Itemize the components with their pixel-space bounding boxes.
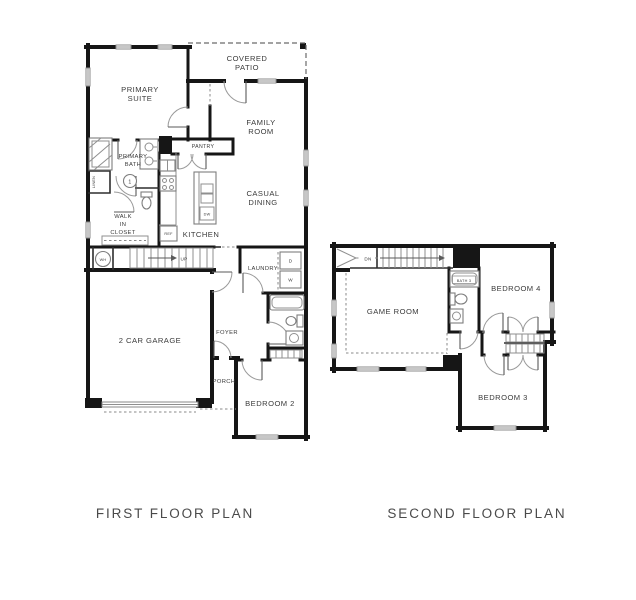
washer-label: W xyxy=(288,278,293,283)
covered-patio-label: PATIO xyxy=(235,63,259,72)
keynote-label: 1 xyxy=(128,179,131,185)
porch-label: PORCH xyxy=(213,379,236,385)
family-room-label: ROOM xyxy=(248,127,273,136)
bedroom-3-label: BEDROOM 3 xyxy=(478,393,528,402)
primary-suite-label: SUITE xyxy=(128,94,153,103)
stair-up-arrow xyxy=(171,255,177,261)
first-floor-labels: COVERED PATIO PRIMARY SUITE FAMILY ROOM … xyxy=(92,54,295,408)
covered-patio-label: COVERED xyxy=(227,54,268,63)
stair-down-arrow xyxy=(439,255,445,261)
laundry-label: LAUNDRY xyxy=(248,266,278,272)
dryer-label: D xyxy=(289,259,293,264)
stairs-first-floor xyxy=(130,248,213,268)
kitchen-label: KITCHEN xyxy=(183,230,220,239)
second-floor-caption: SECOND FLOOR PLAN xyxy=(387,506,566,521)
floor-plan-canvas: COVERED PATIO PRIMARY SUITE FAMILY ROOM … xyxy=(0,0,636,600)
walk-in-closet-label: WALK xyxy=(114,214,132,220)
family-room-label: FAMILY xyxy=(246,118,275,127)
kitchen-counter xyxy=(159,153,176,225)
bath-3-label: BATH 3 xyxy=(457,279,471,283)
stairs-second-floor xyxy=(337,248,445,268)
first-floor-exterior-walls xyxy=(85,43,308,439)
toilet xyxy=(141,192,152,209)
chase-block xyxy=(453,244,480,268)
plan-captions: FIRST FLOOR PLAN SECOND FLOOR PLAN xyxy=(96,506,567,521)
second-floor-exterior-walls xyxy=(332,244,554,430)
walkin-closet-shelf xyxy=(102,236,148,245)
walk-in-closet-label: CLOSET xyxy=(110,230,135,236)
patio-post xyxy=(300,43,306,49)
primary-bath-label: PRIMARY xyxy=(119,154,148,160)
floor-plan-sheet: COVERED PATIO PRIMARY SUITE FAMILY ROOM … xyxy=(0,0,636,600)
bedroom3-closet-shelf xyxy=(506,344,544,353)
casual-dining-label: DINING xyxy=(248,198,277,207)
bedroom-2-label: BEDROOM 2 xyxy=(245,399,295,408)
water-heater-label: WH xyxy=(100,258,107,262)
bath3-sink xyxy=(450,309,463,323)
shower xyxy=(89,138,112,170)
garage-corner-pier xyxy=(85,398,102,408)
walk-in-closet-label: IN xyxy=(120,222,127,228)
pantry-label: PANTRY xyxy=(192,144,215,150)
bedroom4-closet-shelf xyxy=(506,334,544,342)
primary-bath-label: BATH xyxy=(125,162,141,168)
bath3-toilet xyxy=(450,293,467,305)
pantry-wall-block xyxy=(159,136,172,154)
first-floor-windows xyxy=(86,45,308,439)
bedroom-4-label: BEDROOM 4 xyxy=(491,284,541,293)
stair-down-label: DN xyxy=(364,256,371,261)
primary-suite-label: PRIMARY xyxy=(121,85,159,94)
refrigerator-label: REF xyxy=(164,232,173,236)
foyer-label: FOYER xyxy=(216,330,238,336)
bath2-fixtures xyxy=(270,295,304,345)
bedroom2-closet-shelf xyxy=(270,350,302,358)
stair-up-label: UP xyxy=(181,257,188,262)
casual-dining-label: CASUAL xyxy=(246,189,279,198)
garage-label: 2 CAR GARAGE xyxy=(119,336,181,345)
dishwasher-label: DW xyxy=(204,213,211,217)
first-floor-caption: FIRST FLOOR PLAN xyxy=(96,506,254,521)
game-room-label: GAME ROOM xyxy=(367,307,419,316)
stair-landing-mark xyxy=(337,249,356,267)
linen-label: LINEN xyxy=(92,176,96,188)
second-floor-plan: GAME ROOM BATH 3 BEDROOM 4 BEDROOM 3 DN xyxy=(332,244,554,430)
first-floor-plan: COVERED PATIO PRIMARY SUITE FAMILY ROOM … xyxy=(85,43,308,439)
